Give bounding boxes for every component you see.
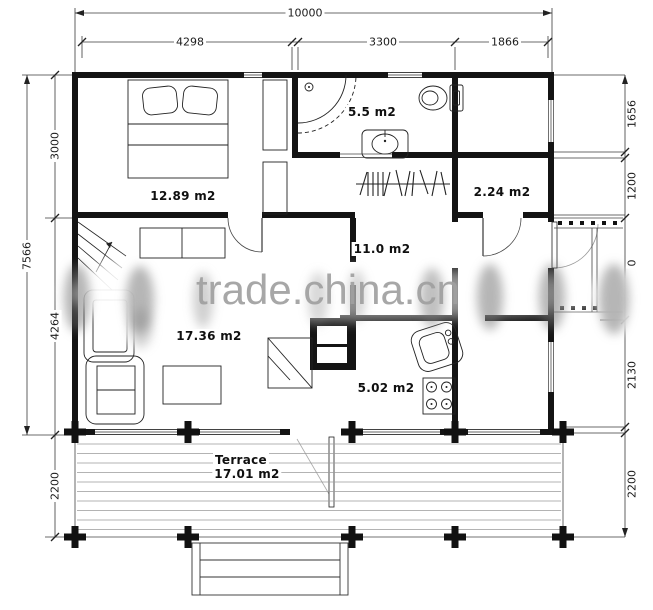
dim-right-seg-1: 1656 — [626, 98, 639, 130]
floor-plan: trade.china.cn 10000 4298 3300 1866 7566… — [0, 0, 653, 610]
loveseat — [86, 356, 144, 424]
dim-top-seg-3: 1866 — [489, 36, 521, 49]
double-bed — [128, 80, 228, 178]
sideboard — [140, 228, 225, 258]
dim-right-seg-3: 0 — [626, 258, 639, 269]
fireplace — [310, 318, 356, 370]
corner-cabinet — [268, 338, 312, 388]
coffee-table — [163, 366, 221, 404]
dim-right-seg-4: 2130 — [626, 359, 639, 391]
dim-top-seg-1: 4298 — [174, 36, 206, 49]
room-label-bathroom: 5.5 m2 — [346, 105, 398, 119]
dim-right-seg-2: 1200 — [626, 170, 639, 202]
stove — [423, 378, 455, 414]
dim-left-seg-2: 4264 — [49, 310, 62, 342]
room-label-kitchen: 5.02 m2 — [356, 381, 417, 395]
entrance-porch — [554, 218, 623, 312]
room-name-terrace: Terrace — [213, 453, 269, 467]
coat-rack — [356, 170, 450, 196]
room-label-closet: 2.24 m2 — [472, 185, 533, 199]
dim-left-seg-3: 2200 — [49, 470, 62, 502]
shower — [298, 75, 356, 133]
posts — [64, 421, 574, 548]
terrace-deck — [75, 435, 563, 537]
room-label-terrace: 17.01 m2 — [212, 467, 281, 481]
wardrobes — [263, 80, 287, 214]
room-label-bedroom: 12.89 m2 — [148, 189, 217, 203]
staircase — [78, 222, 126, 290]
dim-top-seg-2: 3300 — [367, 36, 399, 49]
room-label-hall: 11.0 m2 — [352, 242, 413, 256]
dim-left-seg-1: 3000 — [49, 130, 62, 162]
sofa — [84, 290, 134, 362]
dim-top-overall: 10000 — [286, 7, 325, 20]
dim-left-overall: 7566 — [21, 240, 34, 272]
doors — [228, 154, 598, 507]
windows — [95, 72, 554, 434]
dim-right-seg-5: 2200 — [626, 468, 639, 500]
terrace-steps — [192, 543, 348, 595]
watermark-text: trade.china.cn — [196, 266, 460, 314]
room-label-living: 17.36 m2 — [174, 329, 243, 343]
